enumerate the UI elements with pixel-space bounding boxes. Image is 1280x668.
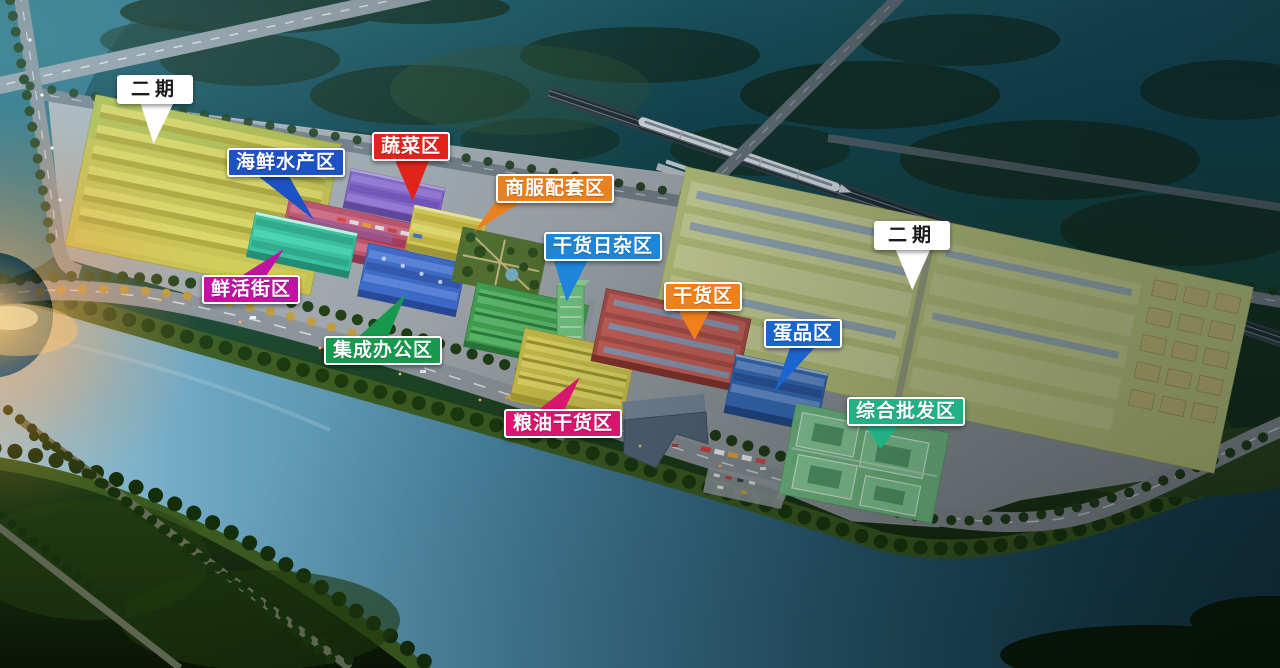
label-grain-oil-zone: 粮油干货区 [504, 409, 622, 438]
label-vegetable-zone: 蔬菜区 [372, 132, 450, 161]
label-commercial-zone: 商服配套区 [496, 174, 614, 203]
label-office-zone: 集成办公区 [324, 336, 442, 365]
aerial-masterplan-rendering: 二期 海鲜水产区 蔬菜区 商服配套区 干货日杂区 干货区 蛋品区 鲜活街区 集成… [0, 0, 1280, 668]
label-sundries-zone: 干货日杂区 [544, 232, 662, 261]
label-seafood-zone: 海鲜水产区 [227, 148, 345, 177]
label-drygoods-zone: 干货区 [664, 282, 742, 311]
label-phase2-right: 二期 [874, 221, 950, 250]
label-wholesale-zone: 综合批发区 [847, 397, 965, 426]
label-eggs-zone: 蛋品区 [764, 319, 842, 348]
label-phase2-left: 二期 [117, 75, 193, 104]
label-fresh-street-zone: 鲜活街区 [202, 275, 300, 304]
